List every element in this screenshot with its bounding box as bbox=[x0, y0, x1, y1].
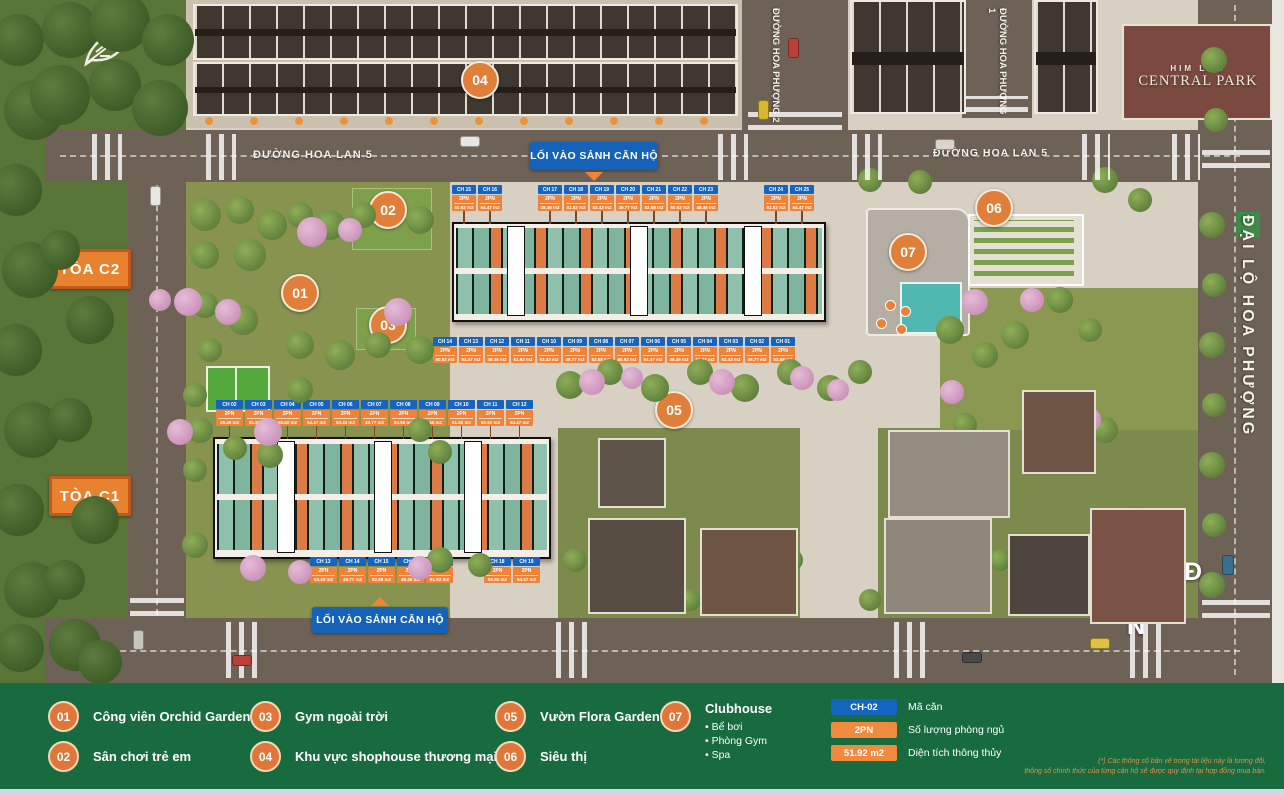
disclaimer-text: (*) Các thông số bản vẽ trong tài liệu n… bbox=[946, 757, 1266, 776]
unit-area: 54.47 m2 bbox=[641, 356, 665, 362]
unit-area: 51.92 m2 bbox=[511, 356, 535, 362]
unit-area: 53.43 m2 bbox=[719, 356, 743, 362]
leader-line bbox=[345, 426, 347, 439]
tree bbox=[848, 360, 872, 384]
tree bbox=[1199, 332, 1225, 358]
tree bbox=[183, 383, 207, 407]
unit-area: 53.43 m2 bbox=[332, 419, 359, 425]
unit-code: CH 12 bbox=[485, 337, 509, 346]
tree bbox=[66, 296, 114, 344]
unit-bedrooms: 2PN bbox=[392, 411, 415, 419]
tree bbox=[859, 589, 881, 611]
unit-tag: CH 152PN52.68 m2 bbox=[368, 557, 395, 583]
leader-line bbox=[519, 426, 521, 439]
tree bbox=[1128, 188, 1152, 212]
legend-label-04: Khu vực shophouse thương mại bbox=[295, 749, 497, 764]
legend-item-01: 01 Công viên Orchid Garden bbox=[48, 701, 250, 732]
unit-tag: CH 102PN51.92 m2 bbox=[448, 400, 475, 439]
unit-bedrooms: 2PN bbox=[773, 348, 793, 356]
tree bbox=[226, 196, 254, 224]
villa-roof bbox=[1090, 508, 1186, 624]
leader-line bbox=[653, 211, 655, 224]
tree bbox=[1001, 321, 1029, 349]
unit-area: 48.46 m2 bbox=[216, 419, 243, 425]
shophouse-roof bbox=[193, 4, 738, 60]
tree bbox=[45, 560, 85, 600]
unit-code: CH 15 bbox=[368, 557, 395, 566]
unit-tag: CH 232PN48.46 m2 bbox=[694, 185, 718, 224]
legend-item-03: 03 Gym ngoài trời bbox=[250, 701, 388, 732]
legend-item-06: 06 Siêu thị bbox=[495, 741, 587, 772]
tree bbox=[563, 548, 587, 572]
shrub bbox=[430, 117, 438, 125]
right-edge-strip bbox=[1272, 0, 1284, 683]
unit-code: CH 13 bbox=[310, 557, 337, 566]
unit-code: CH 03 bbox=[245, 400, 272, 409]
tower-c2-building bbox=[452, 222, 826, 322]
unit-code: CH 08 bbox=[589, 337, 613, 346]
unit-tag: CH 132PN54.47 m2 bbox=[459, 337, 483, 363]
tree bbox=[325, 340, 355, 370]
tree bbox=[198, 338, 222, 362]
car bbox=[460, 136, 480, 147]
leader-line bbox=[463, 211, 465, 224]
unit-tag: CH 022PN49.77 m2 bbox=[745, 337, 769, 363]
brand-logo: HIM LAM CENTRAL PARK bbox=[1128, 64, 1268, 90]
villa-roof bbox=[884, 518, 992, 614]
tree bbox=[827, 379, 849, 401]
unit-bedrooms: 2PN bbox=[363, 411, 386, 419]
tree bbox=[1020, 288, 1044, 312]
unit-bedrooms: 2PN bbox=[566, 196, 586, 204]
key-unit-code-label: Mã căn bbox=[908, 701, 942, 713]
unit-area: 48.46 m2 bbox=[694, 204, 718, 210]
unit-code: CH 14 bbox=[339, 557, 366, 566]
leader-line bbox=[432, 426, 434, 439]
site-plan-map: HIM LAM CENTRAL PARK CH 152PN50.92 m2CH … bbox=[0, 0, 1284, 796]
legend-item-05: 05 Vườn Flora Garden bbox=[495, 701, 660, 732]
tree bbox=[338, 218, 362, 242]
tree bbox=[940, 380, 964, 404]
unit-bedrooms: 2PN bbox=[487, 348, 507, 356]
unit-bedrooms: 2PN bbox=[591, 348, 611, 356]
tree bbox=[972, 342, 998, 368]
tree bbox=[48, 398, 92, 442]
entrance-arrow-down bbox=[585, 172, 603, 181]
unit-bedrooms: 2PN bbox=[276, 411, 299, 419]
road-label-hoa-lan-5-left: ĐƯỜNG HOA LAN 5 bbox=[253, 149, 373, 161]
tree bbox=[641, 374, 669, 402]
leader-line bbox=[316, 426, 318, 439]
unit-bedrooms: 2PN bbox=[454, 196, 474, 204]
tree bbox=[1047, 287, 1073, 313]
unit-code: CH 06 bbox=[641, 337, 665, 346]
unit-tag: CH 022PN48.46 m2 bbox=[216, 400, 243, 439]
crosswalk bbox=[1130, 622, 1164, 678]
unit-code: CH 10 bbox=[448, 400, 475, 409]
unit-area: 53.43 m2 bbox=[590, 204, 614, 210]
tree bbox=[1202, 273, 1226, 297]
unit-tag-row-c2-top: CH 172PN48.46 m2CH 182PN51.92 m2CH 192PN… bbox=[538, 185, 718, 224]
unit-bedrooms: 2PN bbox=[669, 348, 689, 356]
tree bbox=[40, 230, 80, 270]
tree bbox=[286, 331, 314, 359]
unit-area: 49.77 m2 bbox=[616, 204, 640, 210]
villa-roof bbox=[588, 518, 686, 614]
unit-code: CH 21 bbox=[642, 185, 666, 194]
unit-code: CH 20 bbox=[616, 185, 640, 194]
umbrella bbox=[896, 324, 907, 335]
unit-code: CH 19 bbox=[590, 185, 614, 194]
leader-line bbox=[775, 211, 777, 224]
car bbox=[1222, 555, 1234, 575]
unit-tag: CH 052PN48.46 m2 bbox=[667, 337, 691, 363]
tree bbox=[132, 80, 188, 136]
entrance-arrow-up bbox=[371, 597, 389, 606]
unit-tag: CH 112PN50.92 m2 bbox=[477, 400, 504, 439]
unit-bedrooms: 2PN bbox=[218, 411, 241, 419]
unit-bedrooms: 2PN bbox=[334, 411, 357, 419]
car bbox=[962, 652, 982, 663]
unit-code: CH 09 bbox=[563, 337, 587, 346]
legend-num-04: 04 bbox=[250, 741, 281, 772]
legend-label-05: Vườn Flora Garden bbox=[540, 709, 660, 724]
tree bbox=[406, 336, 434, 364]
leader-line bbox=[403, 426, 405, 439]
unit-bedrooms: 2PN bbox=[766, 196, 786, 204]
supermarket-roof-garden bbox=[974, 220, 1074, 276]
unit-code: CH 18 bbox=[564, 185, 588, 194]
key-bedrooms: 2PN bbox=[831, 722, 897, 738]
unit-bedrooms: 2PN bbox=[670, 196, 690, 204]
unit-code: CH 15 bbox=[452, 185, 476, 194]
tree bbox=[1202, 393, 1226, 417]
unit-bedrooms: 2PN bbox=[305, 411, 328, 419]
shrub bbox=[565, 117, 573, 125]
unit-bedrooms: 2PN bbox=[617, 348, 637, 356]
tree bbox=[428, 440, 452, 464]
unit-code: CH 11 bbox=[511, 337, 535, 346]
tree bbox=[1199, 572, 1225, 598]
entrance-badge-top: LỐI VÀO SẢNH CĂN HỘ bbox=[530, 142, 658, 170]
villa-roof bbox=[1022, 390, 1096, 474]
unit-tag: CH 152PN50.92 m2 bbox=[452, 185, 476, 224]
tree bbox=[790, 366, 814, 390]
leader-line bbox=[705, 211, 707, 224]
legend-panel: 01 Công viên Orchid Garden 02 Sân chơi t… bbox=[0, 683, 1284, 789]
shophouse-roof bbox=[1034, 0, 1098, 114]
shrub bbox=[655, 117, 663, 125]
legend-label-03: Gym ngoài trời bbox=[295, 709, 388, 724]
unit-bedrooms: 2PN bbox=[696, 196, 716, 204]
unit-code: CH 24 bbox=[764, 185, 788, 194]
marker-07: 07 bbox=[889, 233, 927, 271]
unit-tag: CH 192PN54.47 m2 bbox=[513, 557, 540, 583]
crosswalk bbox=[852, 134, 882, 180]
unit-bedrooms: 2PN bbox=[435, 348, 455, 356]
unit-tag: CH 142PN50.92 m2 bbox=[433, 337, 457, 363]
unit-bedrooms: 2PN bbox=[565, 348, 585, 356]
clubhouse-bullet-gym: • Phòng Gym bbox=[705, 734, 772, 748]
tree bbox=[408, 418, 432, 442]
tree bbox=[297, 217, 327, 247]
unit-bedrooms: 2PN bbox=[479, 411, 502, 419]
villa-roof bbox=[598, 438, 666, 508]
tree bbox=[731, 374, 759, 402]
crosswalk bbox=[130, 596, 184, 616]
bottom-edge-strip bbox=[0, 789, 1284, 796]
unit-area: 48.46 m2 bbox=[538, 204, 562, 210]
unit-code: CH 07 bbox=[615, 337, 639, 346]
leader-line bbox=[287, 426, 289, 439]
brand-line2: CENTRAL PARK bbox=[1128, 73, 1268, 90]
unit-code: CH 19 bbox=[513, 557, 540, 566]
unit-tag: CH 212PN52.68 m2 bbox=[642, 185, 666, 224]
villa-roof bbox=[700, 528, 798, 616]
legend-num-02: 02 bbox=[48, 741, 79, 772]
unit-code: CH 02 bbox=[216, 400, 243, 409]
legend-label-02: Sân chơi trẻ em bbox=[93, 749, 191, 764]
unit-code: CH 06 bbox=[332, 400, 359, 409]
key-area: 51.92 m2 bbox=[831, 745, 897, 761]
unit-tag: CH 252PN54.47 m2 bbox=[790, 185, 814, 224]
entrance-badge-bottom: LỐI VÀO SẢNH CĂN HỘ bbox=[312, 607, 448, 633]
unit-area: 51.92 m2 bbox=[426, 576, 453, 582]
tree bbox=[1078, 318, 1102, 342]
leader-line bbox=[490, 426, 492, 439]
lane-line bbox=[156, 185, 158, 615]
legend-label-01: Công viên Orchid Garden bbox=[93, 709, 250, 724]
leader-line bbox=[489, 211, 491, 224]
unit-code: CH 05 bbox=[303, 400, 330, 409]
key-bedrooms-label: Số lượng phòng ngủ bbox=[908, 724, 1004, 736]
road-label-hoa-phuong-2: ĐƯỜNG HOA PHƯỢNG 2 bbox=[770, 8, 781, 128]
tree bbox=[1199, 452, 1225, 478]
unit-code: CH 14 bbox=[433, 337, 457, 346]
leader-line bbox=[549, 211, 551, 224]
tree bbox=[579, 369, 605, 395]
unit-area: 54.47 m2 bbox=[459, 356, 483, 362]
tree bbox=[1199, 212, 1225, 238]
car bbox=[758, 100, 769, 120]
tree bbox=[78, 640, 122, 684]
unit-code: CH 02 bbox=[745, 337, 769, 346]
unit-bedrooms: 2PN bbox=[539, 348, 559, 356]
villa-roof bbox=[888, 430, 1010, 518]
legend-label-06: Siêu thị bbox=[540, 749, 587, 764]
unit-tag: CH 132PN53.43 m2 bbox=[310, 557, 337, 583]
unit-code: CH 10 bbox=[537, 337, 561, 346]
unit-code: CH 08 bbox=[390, 400, 417, 409]
unit-area: 53.43 m2 bbox=[310, 576, 337, 582]
leader-line bbox=[374, 426, 376, 439]
crosswalk bbox=[226, 622, 260, 678]
unit-tag-row-c2-top: CH 152PN50.92 m2CH 162PN54.47 m2 bbox=[452, 185, 502, 224]
tree bbox=[468, 553, 492, 577]
tree bbox=[257, 210, 287, 240]
unit-area: 54.47 m2 bbox=[303, 419, 330, 425]
unit-area: 52.68 m2 bbox=[368, 576, 395, 582]
unit-area: 49.77 m2 bbox=[745, 356, 769, 362]
car bbox=[935, 139, 955, 150]
tree bbox=[149, 289, 171, 311]
tree bbox=[191, 241, 219, 269]
unit-area: 54.47 m2 bbox=[478, 204, 502, 210]
marker-04: 04 bbox=[461, 61, 499, 99]
unit-bedrooms: 2PN bbox=[747, 348, 767, 356]
unit-tag: CH 072PN50.92 m2 bbox=[615, 337, 639, 363]
unit-tag-row-c1-bottom: CH 182PN50.92 m2CH 192PN54.47 m2 bbox=[484, 557, 540, 583]
unit-area: 51.92 m2 bbox=[564, 204, 588, 210]
unit-area: 51.92 m2 bbox=[764, 204, 788, 210]
shrub bbox=[610, 117, 618, 125]
legend-num-06: 06 bbox=[495, 741, 526, 772]
legend-num-05: 05 bbox=[495, 701, 526, 732]
brand-line1: HIM LAM bbox=[1128, 64, 1268, 73]
tree bbox=[142, 14, 194, 66]
car bbox=[150, 186, 161, 206]
unit-tag: CH 032PN53.43 m2 bbox=[719, 337, 743, 363]
unit-area: 50.92 m2 bbox=[484, 576, 511, 582]
unit-tag: CH 072PN49.77 m2 bbox=[361, 400, 388, 439]
unit-bedrooms: 2PN bbox=[461, 348, 481, 356]
unit-area: 53.43 m2 bbox=[537, 356, 561, 362]
tree bbox=[709, 369, 735, 395]
unit-area: 54.47 m2 bbox=[790, 204, 814, 210]
unit-tag: CH 222PN50.92 m2 bbox=[668, 185, 692, 224]
tree bbox=[71, 496, 119, 544]
car bbox=[232, 655, 252, 666]
shrub bbox=[700, 117, 708, 125]
unit-tag: CH 112PN51.92 m2 bbox=[511, 337, 535, 363]
unit-bedrooms: 2PN bbox=[450, 411, 473, 419]
tree bbox=[183, 458, 207, 482]
villa-roof bbox=[1008, 534, 1090, 616]
unit-code: CH 11 bbox=[477, 400, 504, 409]
tree bbox=[240, 555, 266, 581]
marker-06: 06 bbox=[975, 189, 1013, 227]
key-unit-code: CH-02 bbox=[831, 699, 897, 715]
marker-01: 01 bbox=[281, 274, 319, 312]
unit-tag: CH 122PN48.46 m2 bbox=[485, 337, 509, 363]
leader-line bbox=[679, 211, 681, 224]
tree bbox=[1204, 108, 1228, 132]
crosswalk bbox=[1172, 134, 1200, 180]
unit-bedrooms: 2PN bbox=[421, 411, 444, 419]
unit-code: CH 05 bbox=[667, 337, 691, 346]
unit-tag: CH 142PN49.77 m2 bbox=[339, 557, 366, 583]
unit-bedrooms: 2PN bbox=[592, 196, 612, 204]
unit-area: 49.77 m2 bbox=[361, 419, 388, 425]
unit-tag: CH 202PN49.77 m2 bbox=[616, 185, 640, 224]
unit-area: 50.92 m2 bbox=[615, 356, 639, 362]
crosswalk bbox=[92, 134, 122, 180]
unit-area: 50.92 m2 bbox=[452, 204, 476, 210]
leader-line bbox=[601, 211, 603, 224]
unit-bedrooms: 2PN bbox=[540, 196, 560, 204]
unit-tag: CH 162PN54.47 m2 bbox=[478, 185, 502, 224]
unit-area: 54.47 m2 bbox=[513, 576, 540, 582]
tree bbox=[287, 377, 313, 403]
legend-label-07: Clubhouse bbox=[705, 701, 772, 716]
tree bbox=[167, 419, 193, 445]
tree bbox=[288, 560, 312, 584]
unit-bedrooms: 2PN bbox=[312, 568, 335, 576]
unit-bedrooms: 2PN bbox=[644, 196, 664, 204]
tree bbox=[1201, 47, 1227, 73]
tree bbox=[406, 206, 434, 234]
shrub bbox=[475, 117, 483, 125]
car bbox=[1090, 638, 1110, 649]
unit-code: CH 22 bbox=[668, 185, 692, 194]
unit-tag: CH 192PN53.43 m2 bbox=[590, 185, 614, 224]
tree bbox=[182, 532, 208, 558]
tree bbox=[254, 418, 282, 446]
clubhouse-bullet-pool: • Bể bơi bbox=[705, 720, 772, 734]
shrub bbox=[520, 117, 528, 125]
unit-area: 54.47 m2 bbox=[506, 419, 533, 425]
unit-area: 49.77 m2 bbox=[339, 576, 366, 582]
legend-num-03: 03 bbox=[250, 701, 281, 732]
tree bbox=[174, 288, 202, 316]
tree bbox=[384, 298, 412, 326]
legend-item-07: 07 Clubhouse • Bể bơi • Phòng Gym • Spa bbox=[660, 701, 772, 762]
crosswalk bbox=[1082, 134, 1110, 180]
unit-code: CH 03 bbox=[719, 337, 743, 346]
umbrella bbox=[900, 306, 911, 317]
unit-code: CH 04 bbox=[693, 337, 717, 346]
tree bbox=[936, 316, 964, 344]
unit-area: 48.46 m2 bbox=[667, 356, 691, 362]
unit-area: 49.77 m2 bbox=[563, 356, 587, 362]
unit-area: 52.68 m2 bbox=[642, 204, 666, 210]
shrub bbox=[205, 117, 213, 125]
unit-code: CH 16 bbox=[478, 185, 502, 194]
legend-num-07: 07 bbox=[660, 701, 691, 732]
tree bbox=[621, 367, 643, 389]
unit-code: CH 12 bbox=[506, 400, 533, 409]
unit-bedrooms: 2PN bbox=[370, 568, 393, 576]
unit-bedrooms: 2PN bbox=[618, 196, 638, 204]
leader-line bbox=[461, 426, 463, 439]
unit-code: CH 23 bbox=[694, 185, 718, 194]
crosswalk bbox=[1202, 146, 1270, 168]
unit-area: 50.92 m2 bbox=[668, 204, 692, 210]
unit-tag: CH 062PN53.43 m2 bbox=[332, 400, 359, 439]
tree bbox=[908, 170, 932, 194]
legend-num-01: 01 bbox=[48, 701, 79, 732]
crosswalk bbox=[894, 622, 928, 678]
legend-item-04: 04 Khu vực shophouse thương mại bbox=[250, 741, 497, 772]
shrub bbox=[385, 117, 393, 125]
tree bbox=[223, 436, 247, 460]
umbrella bbox=[876, 318, 887, 329]
unit-code: CH 25 bbox=[790, 185, 814, 194]
tree bbox=[215, 299, 241, 325]
unit-bedrooms: 2PN bbox=[643, 348, 663, 356]
unit-tag: CH 122PN54.47 m2 bbox=[506, 400, 533, 439]
tree bbox=[408, 556, 432, 580]
legend-item-02: 02 Sân chơi trẻ em bbox=[48, 741, 191, 772]
unit-code: CH 07 bbox=[361, 400, 388, 409]
tree bbox=[234, 239, 266, 271]
shophouse-roof bbox=[850, 0, 966, 114]
leader-line bbox=[627, 211, 629, 224]
unit-tag: CH 102PN53.43 m2 bbox=[537, 337, 561, 363]
unit-bedrooms: 2PN bbox=[721, 348, 741, 356]
unit-area: 50.92 m2 bbox=[477, 419, 504, 425]
unit-bedrooms: 2PN bbox=[508, 411, 531, 419]
